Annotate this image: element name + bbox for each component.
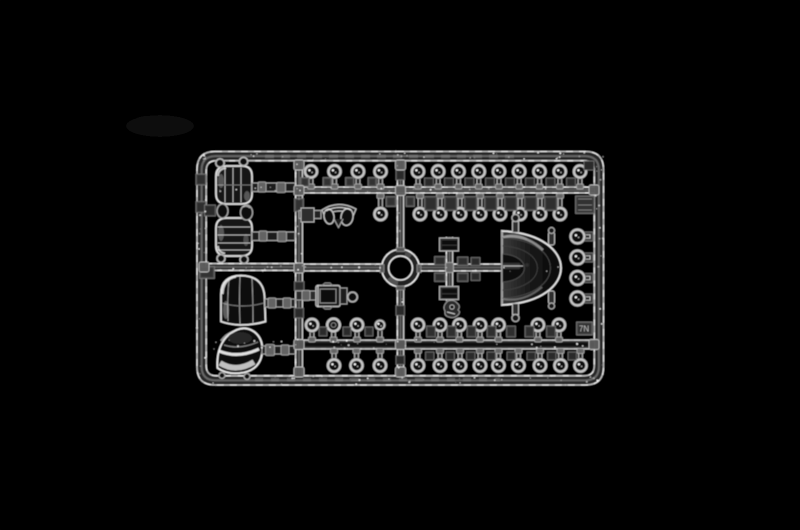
svg-text:7N: 7N [579,325,589,334]
